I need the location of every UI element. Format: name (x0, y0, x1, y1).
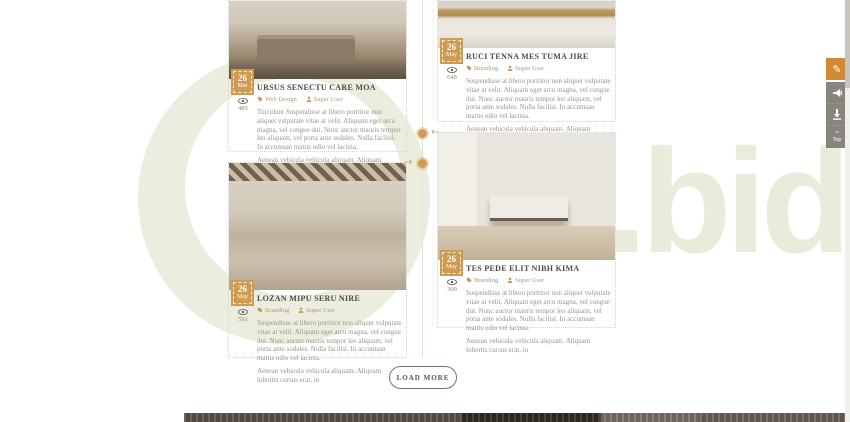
post-image[interactable] (438, 1, 615, 48)
eye-icon (238, 98, 248, 104)
photo-table (490, 195, 568, 221)
post-title[interactable]: RUCI TENNA MES TUMA JIRE (466, 52, 611, 62)
timeline-line (422, 0, 423, 358)
post-image[interactable] (229, 163, 406, 290)
date-month: Mar (238, 83, 248, 90)
post-author[interactable]: Super User (298, 307, 335, 314)
user-icon (507, 65, 513, 71)
post-meta: Web Design Super User (257, 94, 402, 104)
eye-icon (238, 309, 248, 315)
arrow-right-icon: → (404, 158, 412, 168)
page: .bid ← → 26 Mar 485 URSUS SENECTU CARE M… (0, 0, 850, 422)
tag-icon (257, 307, 263, 313)
watermark-text: .bid (606, 128, 845, 276)
paintbrush-icon: ✎ (832, 63, 841, 76)
tag-icon (257, 96, 263, 102)
timeline-dot (418, 159, 427, 168)
blog-post-card: 26 May 591 LOZAN MIPU SERU NIRE Branding… (228, 162, 407, 358)
timeline-dot (418, 129, 427, 138)
post-date-badge: 26 Mar (231, 69, 254, 95)
post-category[interactable]: Branding (466, 277, 498, 284)
post-excerpt-2: Aenean vehicula vehicula aliquam. Aliqua… (466, 337, 611, 355)
photo-sofa (257, 35, 355, 61)
post-excerpt-2: Aenean vehicula vehicula aliquam. Aliqua… (257, 367, 402, 385)
post-date-badge: 26 May (440, 38, 463, 64)
date-day: 26 (238, 285, 247, 294)
post-title[interactable]: LOZAN MIPU SERU NIRE (257, 294, 402, 304)
load-more-button[interactable]: LOAD MORE (389, 366, 457, 389)
post-meta: Branding Super User (466, 275, 611, 285)
post-excerpt: Suspendisse at libero porttitor non aliq… (257, 319, 402, 363)
blog-post-card: 26 Mar 485 URSUS SENECTU CARE MOA Web De… (228, 0, 407, 152)
date-month: May (446, 264, 457, 271)
tag-icon (466, 65, 472, 71)
blog-post-card: 26 May 648 RUCI TENNA MES TUMA JIRE Bran… (437, 0, 616, 122)
post-title[interactable]: TES PEDE ELIT NIBH KIMA (466, 264, 611, 274)
user-icon (298, 307, 304, 313)
scroll-top-label: Top (833, 137, 842, 143)
photo-pattern (229, 163, 406, 181)
user-icon (306, 96, 312, 102)
post-category[interactable]: Branding (466, 65, 498, 72)
post-author[interactable]: Super User (507, 277, 544, 284)
date-day: 26 (447, 43, 456, 52)
post-views: 309 (440, 279, 464, 293)
eye-icon (447, 279, 457, 285)
megaphone-icon (832, 88, 843, 98)
post-views: 648 (440, 67, 464, 81)
tag-icon (466, 277, 472, 283)
post-excerpt: Suspendisse at libero porttitor non aliq… (466, 77, 611, 121)
views-count: 309 (447, 286, 457, 293)
arrow-left-icon: ← (431, 128, 439, 138)
post-excerpt: Suspendisse at libero porttitor non aliq… (466, 289, 611, 333)
scrollbar-thumb[interactable] (845, 0, 850, 88)
post-views: 485 (231, 98, 255, 112)
views-count: 648 (447, 74, 457, 81)
post-category[interactable]: Branding (257, 307, 289, 314)
post-title[interactable]: URSUS SENECTU CARE MOA (257, 83, 402, 93)
user-icon (507, 277, 513, 283)
date-month: May (237, 294, 248, 301)
post-meta: Branding Super User (257, 305, 402, 315)
eye-icon (447, 67, 457, 73)
views-count: 485 (238, 105, 248, 112)
post-author[interactable]: Super User (507, 65, 544, 72)
download-icon (832, 109, 842, 120)
post-excerpt: Tincidunt Suspendisse at libero porttito… (257, 108, 402, 152)
post-category[interactable]: Web Design (257, 96, 297, 103)
date-month: May (446, 52, 457, 59)
post-image[interactable] (229, 1, 406, 79)
date-day: 26 (238, 74, 247, 83)
post-date-badge: 26 May (440, 250, 463, 276)
scrollbar-track[interactable] (845, 0, 850, 422)
post-date-badge: 26 May (231, 280, 254, 306)
footer-image-strip (184, 413, 845, 422)
date-day: 26 (447, 255, 456, 264)
post-image[interactable] (438, 133, 615, 260)
views-count: 591 (238, 316, 248, 323)
post-author[interactable]: Super User (306, 96, 343, 103)
post-views: 591 (231, 309, 255, 323)
post-meta: Branding Super User (466, 63, 611, 73)
blog-post-card: 26 May 309 TES PEDE ELIT NIBH KIMA Brand… (437, 132, 616, 328)
